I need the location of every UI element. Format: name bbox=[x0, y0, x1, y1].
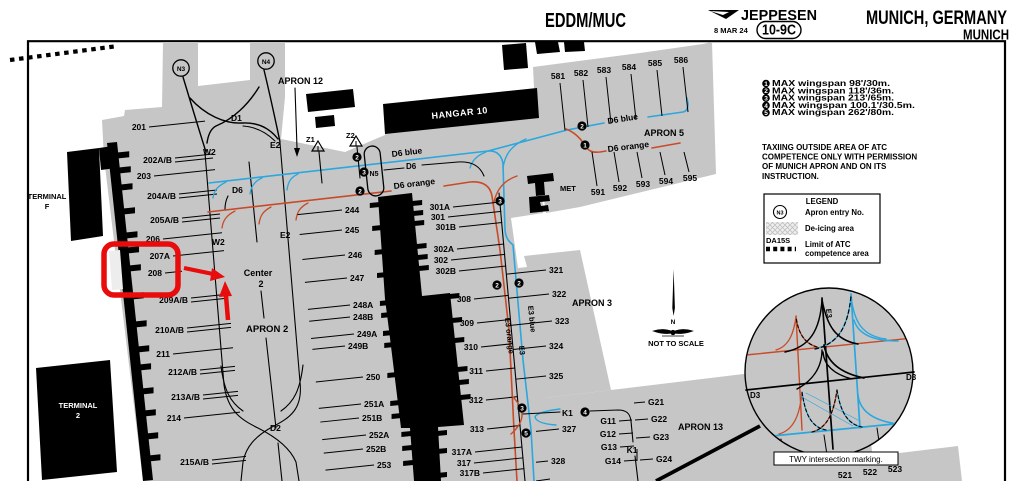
svg-text:249A: 249A bbox=[357, 329, 377, 339]
svg-text:W2: W2 bbox=[203, 147, 216, 157]
svg-text:204A/B: 204A/B bbox=[147, 191, 176, 201]
svg-text:W2: W2 bbox=[212, 237, 225, 247]
svg-text:201: 201 bbox=[132, 122, 146, 132]
svg-text:E2: E2 bbox=[270, 140, 281, 150]
svg-text:308: 308 bbox=[457, 294, 471, 304]
svg-text:8 MAR 24: 8 MAR 24 bbox=[714, 26, 749, 35]
svg-text:583: 583 bbox=[597, 65, 611, 75]
svg-text:251B: 251B bbox=[362, 413, 382, 423]
svg-text:K1: K1 bbox=[562, 408, 573, 418]
svg-text:203: 203 bbox=[137, 171, 151, 181]
svg-text:D3: D3 bbox=[750, 391, 761, 400]
svg-text:Z2: Z2 bbox=[346, 131, 355, 140]
svg-text:G23: G23 bbox=[653, 432, 669, 442]
svg-text:301: 301 bbox=[431, 212, 445, 222]
svg-text:248A: 248A bbox=[353, 300, 373, 310]
svg-text:582: 582 bbox=[574, 68, 588, 78]
svg-text:OF MUNICH APRON AND ON ITS: OF MUNICH APRON AND ON ITS bbox=[762, 162, 887, 171]
svg-text:competence area: competence area bbox=[805, 249, 869, 258]
svg-text:N: N bbox=[671, 319, 676, 326]
svg-text:253: 253 bbox=[377, 460, 391, 470]
svg-text:G13: G13 bbox=[601, 442, 617, 452]
svg-text:Center: Center bbox=[244, 268, 273, 278]
svg-text:G21: G21 bbox=[648, 397, 664, 407]
svg-text:2: 2 bbox=[517, 280, 521, 287]
svg-text:G11: G11 bbox=[600, 416, 616, 426]
svg-text:317B: 317B bbox=[460, 468, 480, 478]
svg-text:302: 302 bbox=[434, 255, 448, 265]
svg-text:317A: 317A bbox=[452, 447, 472, 457]
svg-text:251A: 251A bbox=[364, 399, 384, 409]
svg-text:5: 5 bbox=[524, 430, 528, 437]
svg-text:325: 325 bbox=[549, 371, 563, 381]
svg-text:584: 584 bbox=[622, 62, 636, 72]
svg-text:E3: E3 bbox=[517, 345, 527, 355]
svg-text:De-icing area: De-icing area bbox=[805, 224, 855, 233]
svg-text:302B: 302B bbox=[436, 266, 456, 276]
svg-text:APRON 12: APRON 12 bbox=[278, 76, 323, 86]
svg-text:311: 311 bbox=[469, 366, 483, 376]
svg-text:2: 2 bbox=[355, 154, 359, 161]
svg-text:D6: D6 bbox=[232, 185, 243, 195]
svg-text:MUNICH, GERMANY: MUNICH, GERMANY bbox=[866, 7, 1007, 29]
svg-text:N5: N5 bbox=[370, 171, 379, 178]
svg-text:APRON 13: APRON 13 bbox=[678, 422, 723, 432]
svg-text:301A: 301A bbox=[430, 202, 450, 212]
svg-text:G14: G14 bbox=[605, 456, 621, 466]
svg-text:244: 244 bbox=[345, 205, 359, 215]
svg-text:322: 322 bbox=[552, 289, 566, 299]
svg-text:MAX wingspan 262'/80m.: MAX wingspan 262'/80m. bbox=[772, 108, 894, 117]
svg-text:302A: 302A bbox=[434, 244, 454, 254]
svg-text:EDDM/MUC: EDDM/MUC bbox=[545, 10, 626, 32]
svg-text:309: 309 bbox=[460, 318, 474, 328]
svg-text:3: 3 bbox=[362, 169, 366, 176]
svg-text:212A/B: 212A/B bbox=[168, 367, 197, 377]
svg-text:APRON 3: APRON 3 bbox=[572, 298, 612, 308]
svg-text:594: 594 bbox=[659, 176, 673, 186]
svg-text:585: 585 bbox=[648, 58, 662, 68]
svg-text:327: 327 bbox=[562, 424, 576, 434]
svg-text:592: 592 bbox=[613, 183, 627, 193]
svg-text:205A/B: 205A/B bbox=[150, 215, 179, 225]
svg-text:TERMINAL: TERMINAL bbox=[59, 401, 98, 410]
svg-text:5: 5 bbox=[764, 110, 768, 117]
svg-text:252B: 252B bbox=[366, 444, 386, 454]
svg-text:G12: G12 bbox=[600, 429, 616, 439]
svg-text:249B: 249B bbox=[348, 341, 368, 351]
svg-text:D2: D2 bbox=[270, 423, 281, 433]
svg-text:310: 310 bbox=[464, 342, 478, 352]
svg-text:2: 2 bbox=[358, 188, 362, 195]
svg-text:TWY intersection marking.: TWY intersection marking. bbox=[789, 455, 883, 464]
svg-text:D6: D6 bbox=[406, 162, 417, 171]
svg-text:317: 317 bbox=[457, 458, 471, 468]
svg-text:1: 1 bbox=[764, 81, 768, 88]
svg-text:Apron entry No.: Apron entry No. bbox=[805, 208, 864, 217]
svg-text:2: 2 bbox=[76, 411, 80, 420]
svg-text:2: 2 bbox=[258, 279, 263, 289]
svg-text:APRON 5: APRON 5 bbox=[644, 128, 684, 138]
svg-text:301B: 301B bbox=[436, 222, 456, 232]
svg-text:F: F bbox=[45, 202, 50, 211]
svg-text:202A/B: 202A/B bbox=[143, 155, 172, 165]
svg-text:G24: G24 bbox=[656, 454, 672, 464]
svg-text:NOT TO SCALE: NOT TO SCALE bbox=[648, 339, 704, 348]
svg-text:312: 312 bbox=[469, 395, 483, 405]
svg-text:MET: MET bbox=[560, 184, 576, 193]
svg-text:321: 321 bbox=[549, 265, 563, 275]
svg-text:INSTRUCTION.: INSTRUCTION. bbox=[762, 172, 819, 181]
svg-text:246: 246 bbox=[348, 250, 362, 260]
svg-text:N4: N4 bbox=[262, 59, 271, 66]
svg-text:3: 3 bbox=[498, 198, 502, 205]
svg-text:207A: 207A bbox=[150, 251, 170, 261]
svg-text:DA15S: DA15S bbox=[766, 236, 790, 245]
svg-text:313: 313 bbox=[470, 424, 484, 434]
svg-text:N3: N3 bbox=[776, 211, 783, 217]
svg-text:10-9C: 10-9C bbox=[762, 23, 796, 39]
svg-text:2: 2 bbox=[580, 123, 584, 130]
svg-text:APRON 2: APRON 2 bbox=[246, 324, 288, 335]
svg-text:G22: G22 bbox=[651, 414, 667, 424]
svg-text:593: 593 bbox=[636, 179, 650, 189]
svg-text:D3: D3 bbox=[906, 373, 917, 382]
svg-text:250: 250 bbox=[366, 372, 380, 382]
svg-text:245: 245 bbox=[345, 225, 359, 235]
svg-text:2: 2 bbox=[495, 282, 499, 289]
svg-text:521: 521 bbox=[838, 470, 852, 480]
svg-text:248B: 248B bbox=[353, 312, 373, 322]
svg-text:324: 324 bbox=[549, 341, 563, 351]
svg-text:323: 323 bbox=[555, 316, 569, 326]
svg-text:3: 3 bbox=[764, 96, 768, 103]
svg-text:Limit of ATC: Limit of ATC bbox=[805, 240, 851, 249]
svg-text:D1: D1 bbox=[231, 113, 242, 123]
svg-text:N3: N3 bbox=[177, 66, 186, 73]
svg-text:2: 2 bbox=[764, 88, 768, 95]
svg-text:TAXIING OUTSIDE AREA OF ATC: TAXIING OUTSIDE AREA OF ATC bbox=[762, 143, 887, 152]
svg-text:214: 214 bbox=[167, 413, 181, 423]
svg-text:4: 4 bbox=[583, 409, 587, 416]
svg-text:Z1: Z1 bbox=[306, 135, 315, 144]
svg-text:LEGEND: LEGEND bbox=[806, 197, 839, 206]
svg-text:213A/B: 213A/B bbox=[171, 392, 200, 402]
svg-text:328: 328 bbox=[551, 456, 565, 466]
svg-text:586: 586 bbox=[674, 55, 688, 65]
svg-text:E2: E2 bbox=[280, 230, 291, 240]
svg-text:COMPETENCE ONLY WITH PERMISSIO: COMPETENCE ONLY WITH PERMISSION bbox=[762, 153, 917, 162]
svg-text:595: 595 bbox=[683, 173, 697, 183]
svg-text:TERMINAL: TERMINAL bbox=[28, 192, 67, 201]
svg-text:210A/B: 210A/B bbox=[155, 325, 184, 335]
svg-text:215A/B: 215A/B bbox=[180, 457, 209, 467]
svg-text:252A: 252A bbox=[369, 430, 389, 440]
svg-text:4: 4 bbox=[764, 103, 768, 110]
svg-text:211: 211 bbox=[156, 349, 170, 359]
svg-text:1: 1 bbox=[583, 142, 587, 149]
svg-text:522: 522 bbox=[863, 467, 877, 477]
svg-text:247: 247 bbox=[350, 273, 364, 283]
svg-text:591: 591 bbox=[591, 187, 605, 197]
svg-text:208: 208 bbox=[148, 268, 162, 278]
svg-text:523: 523 bbox=[888, 464, 902, 474]
svg-text:581: 581 bbox=[551, 71, 565, 81]
svg-text:3: 3 bbox=[520, 405, 524, 412]
